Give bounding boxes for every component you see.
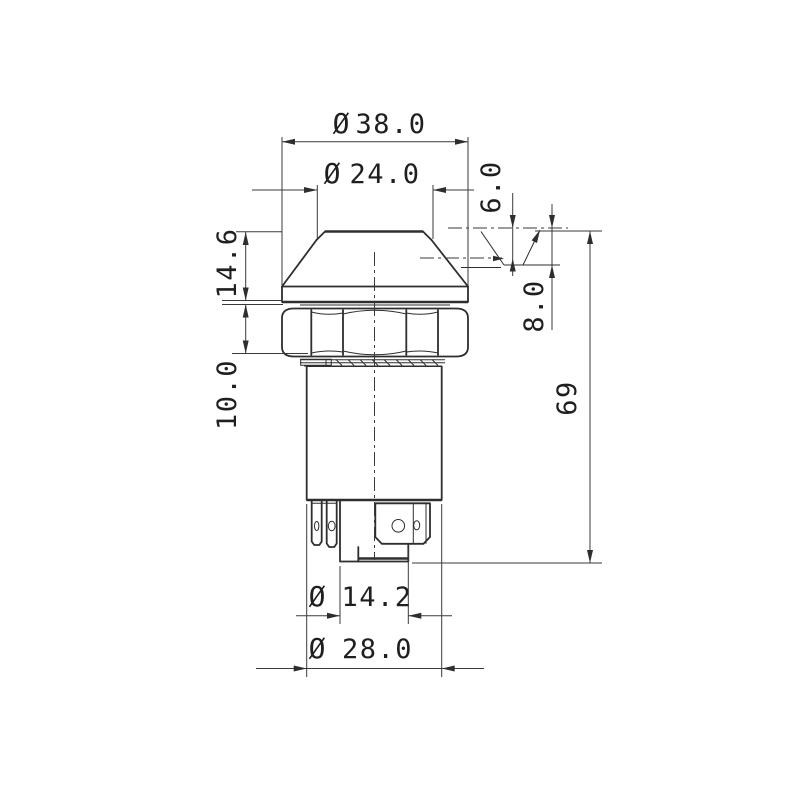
dim-text-dia-28: 28.0: [342, 634, 413, 665]
dim-dia-24: Ø 24.0: [252, 157, 474, 239]
detail-view: [420, 228, 568, 268]
terminal-hole-center: [392, 520, 405, 533]
terminal-hole-left-2: [328, 521, 335, 531]
terminals: [312, 500, 430, 562]
dia-symbol: Ø: [333, 107, 350, 140]
dim-height-10-0: 10.0: [212, 305, 308, 431]
dia-symbol: Ø: [309, 632, 326, 665]
terminal-hole-right: [414, 521, 420, 530]
dim-detail-8-0: 8.0: [519, 204, 555, 333]
technical-drawing: Ø 38.0 Ø 24.0 14.6 10.0 69: [0, 0, 800, 800]
cap-outline: [282, 232, 468, 306]
notch-arrow: [532, 230, 540, 243]
dim-text-dia-24: 24.0: [349, 159, 420, 190]
dim-height-14-6: 14.6: [212, 227, 282, 300]
terminal-hole-left-1: [315, 521, 319, 530]
dim-text-8-0: 8.0: [519, 279, 550, 332]
dim-text-14-6: 14.6: [212, 227, 243, 298]
dia-symbol: Ø: [309, 580, 326, 613]
dim-text-6-0: 6.0: [476, 160, 507, 213]
dim-text-10-0: 10.0: [212, 359, 243, 430]
drawing-canvas: Ø 38.0 Ø 24.0 14.6 10.0 69: [0, 0, 800, 800]
dim-text-69: 69: [552, 380, 583, 416]
dim-text-dia-14-2: 14.2: [341, 582, 412, 613]
lock-washer: [300, 359, 445, 366]
dim-text-dia-38: 38.0: [355, 109, 426, 140]
dim-dia-14-2: Ø 14.2: [296, 549, 452, 624]
dia-symbol: Ø: [324, 157, 341, 190]
dim-length-69: 69: [412, 231, 602, 563]
